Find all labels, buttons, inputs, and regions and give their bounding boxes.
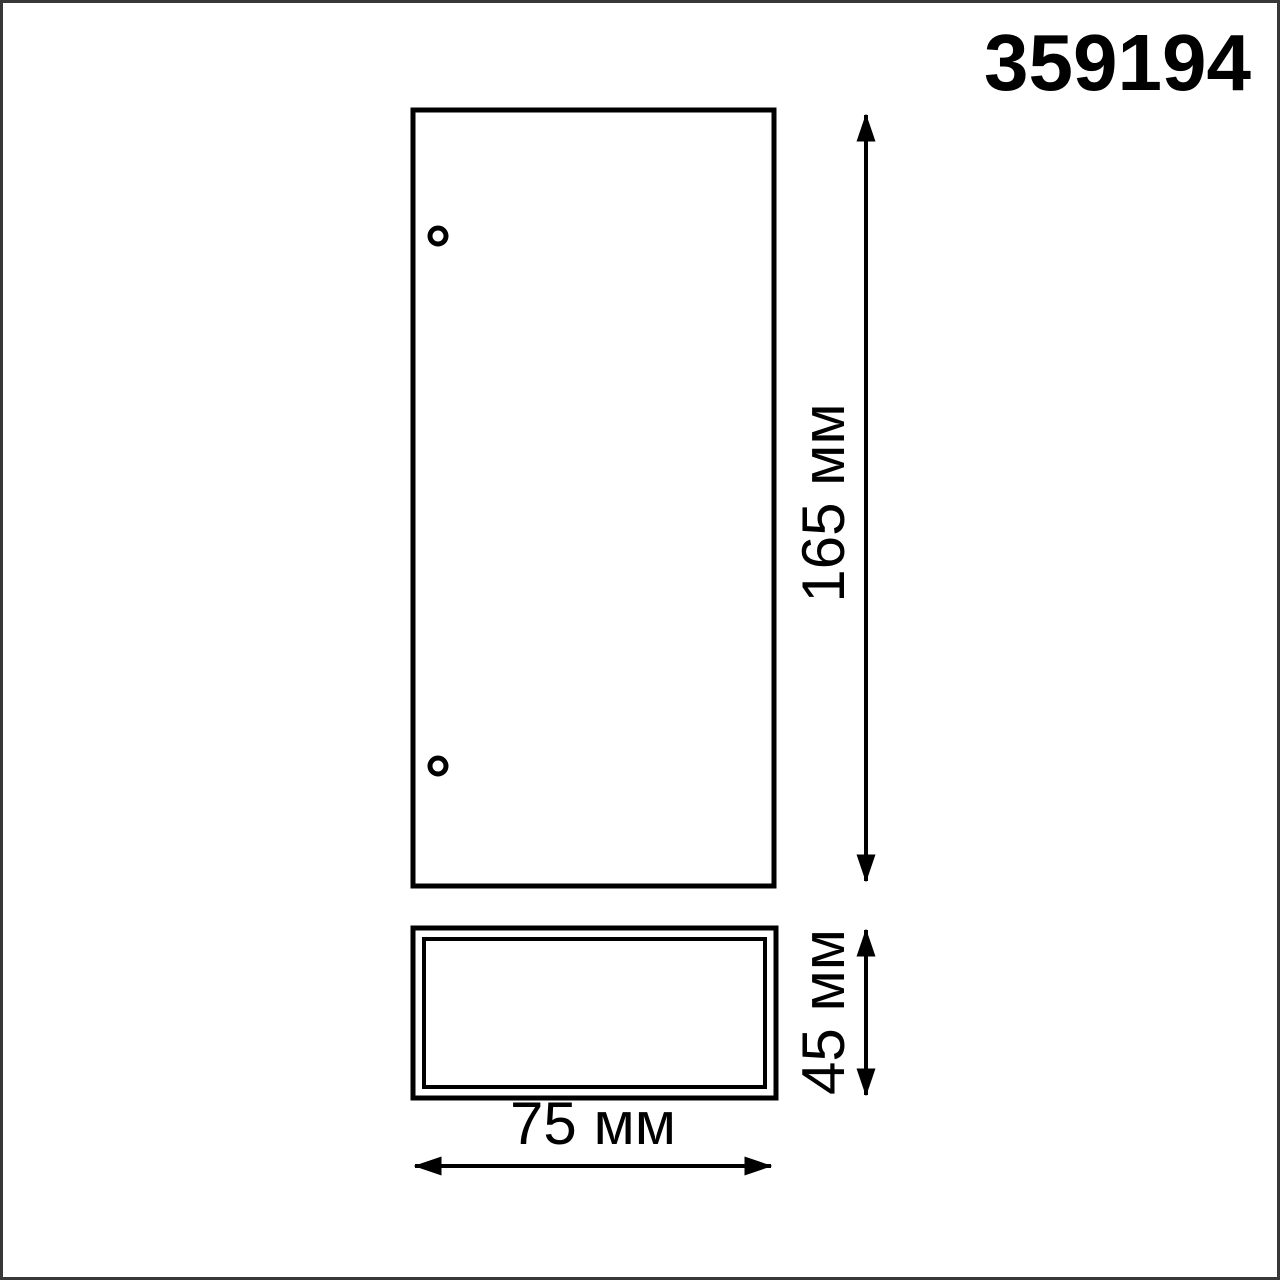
depth-dimension-label: 45 мм xyxy=(794,929,854,1095)
width-dimension-label: 75 мм xyxy=(510,1094,676,1154)
top-view-outline-inner xyxy=(424,939,765,1087)
height-dimension-label: 165 мм xyxy=(794,403,854,602)
front-view-outline xyxy=(413,110,774,886)
drawing-canvas: 359194 165 мм 45 мм 75 мм xyxy=(0,0,1280,1280)
technical-drawing xyxy=(3,3,1280,1280)
mounting-hole-bottom xyxy=(430,758,446,774)
mounting-hole-top xyxy=(430,228,446,244)
